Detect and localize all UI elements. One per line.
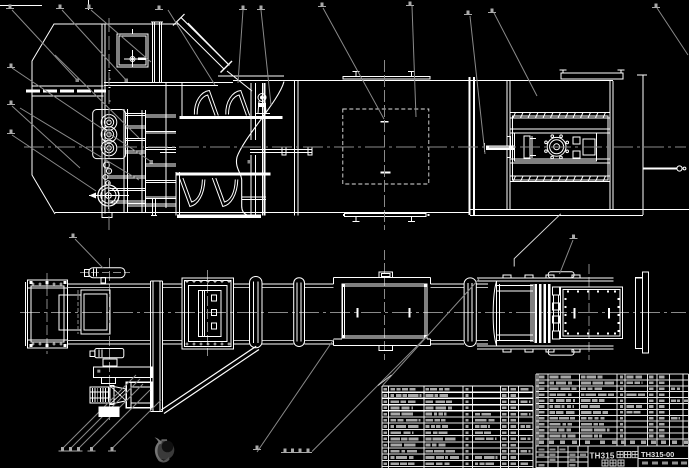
svg-text:TH315: TH315 — [590, 452, 615, 461]
svg-text:TH315-00: TH315-00 — [641, 450, 674, 459]
